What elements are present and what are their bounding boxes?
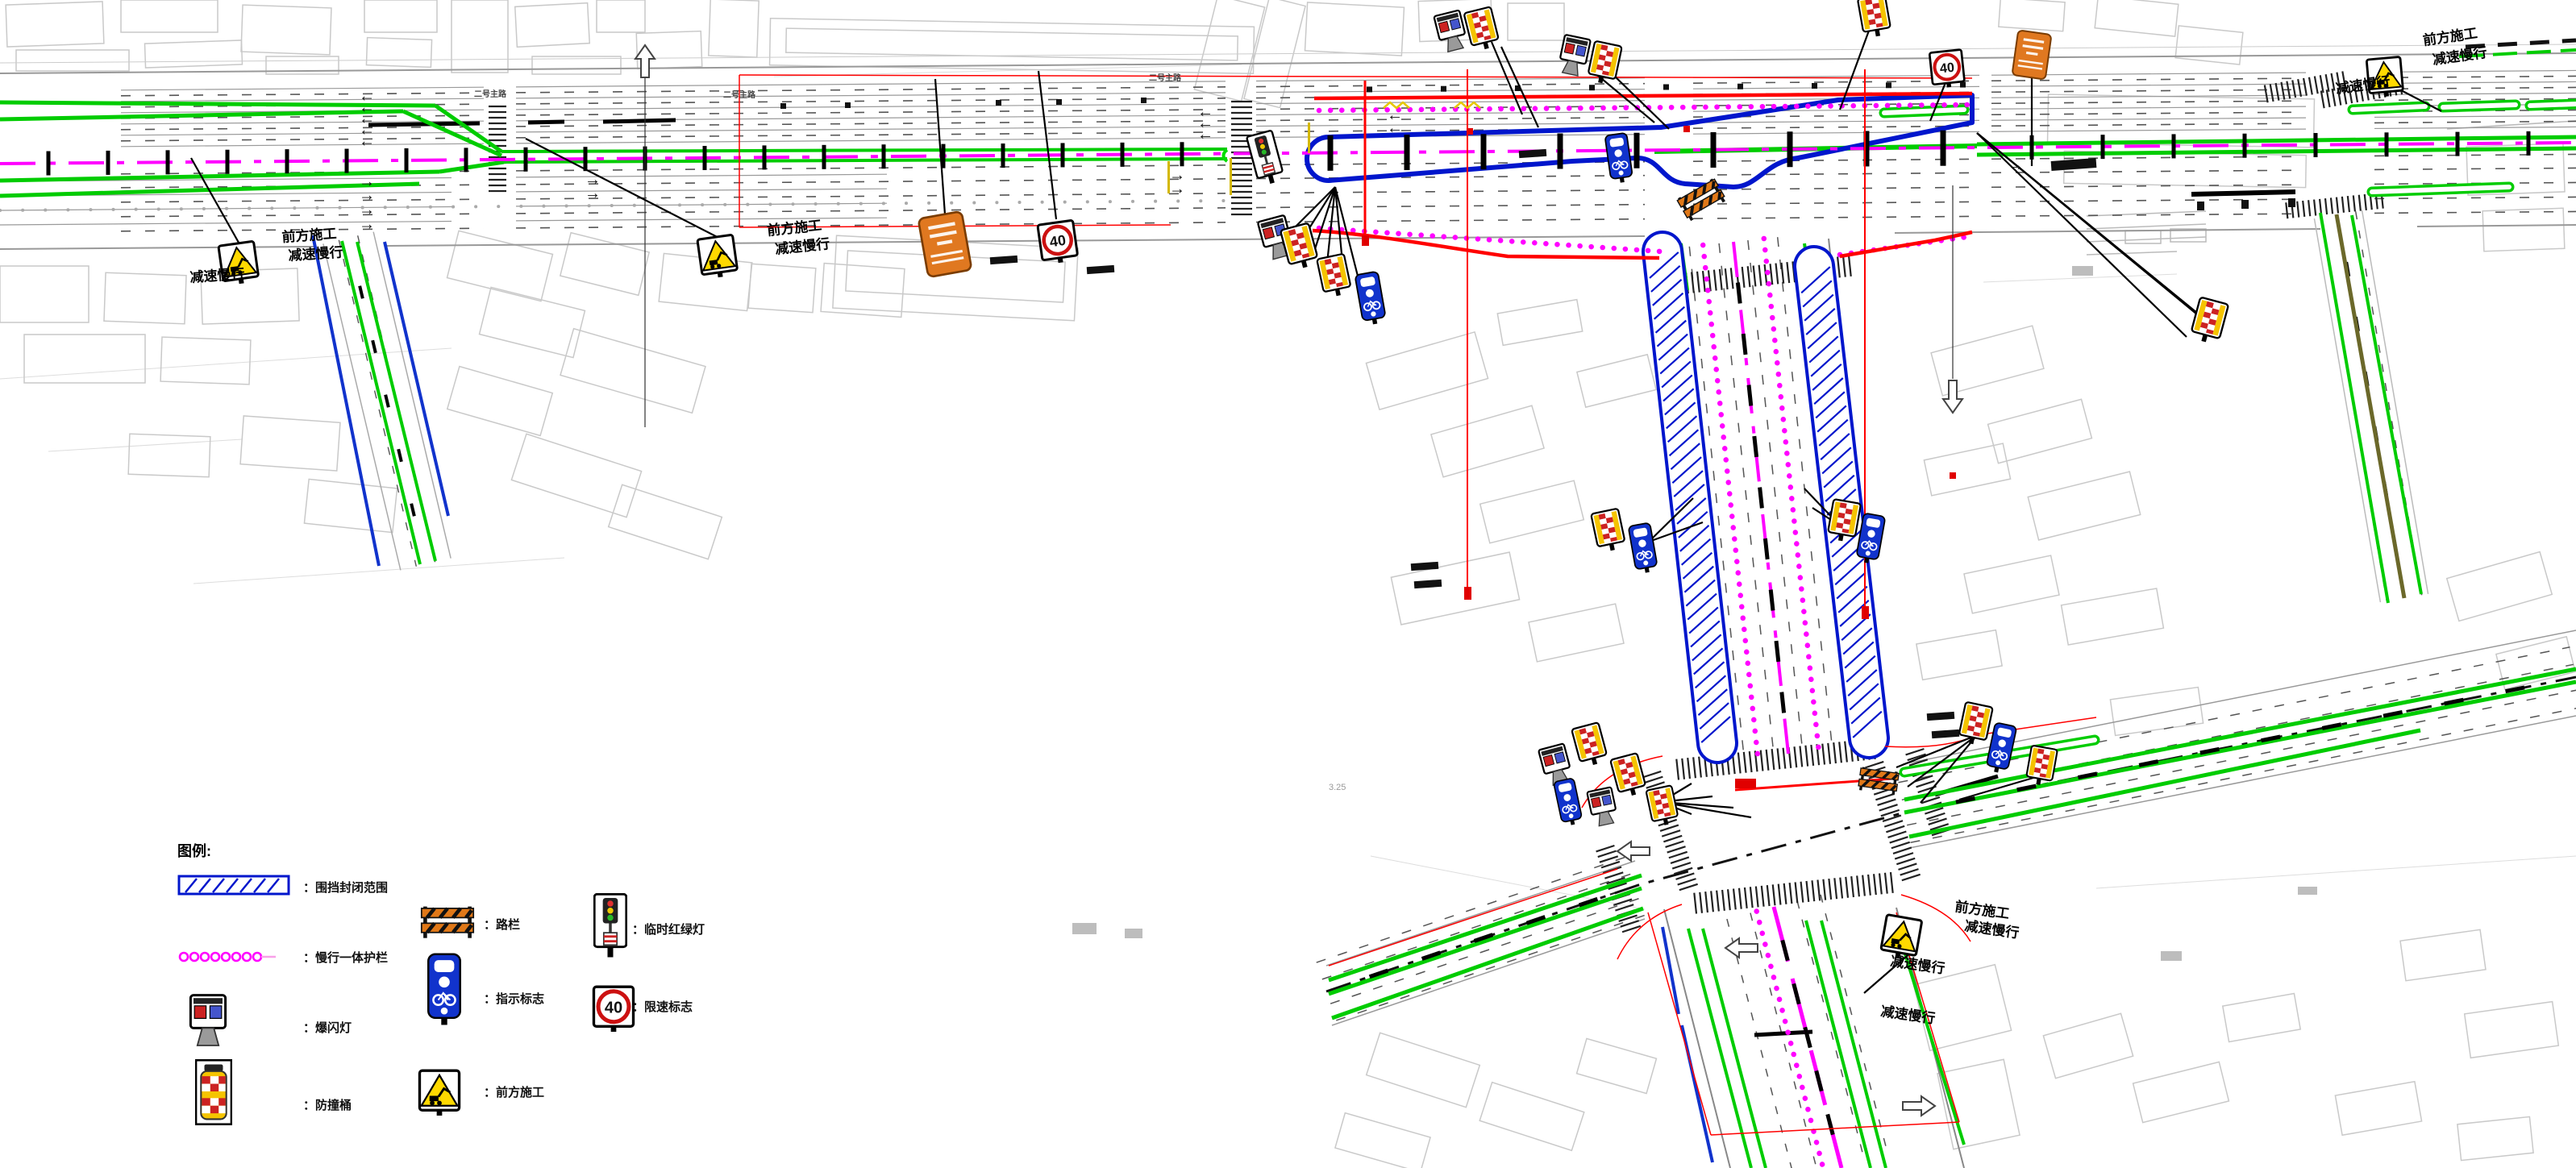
centerline-tick <box>584 147 588 171</box>
lane-arrow: ← <box>1197 103 1213 121</box>
zebra-stripe <box>1779 884 1781 905</box>
lane-line <box>2374 93 2576 94</box>
lane-dash <box>516 110 1226 115</box>
zebra-stripe <box>1717 891 1719 912</box>
building-footprint <box>304 479 397 532</box>
small-label-bar <box>1927 712 1955 721</box>
zebra-stripe <box>1807 881 1809 902</box>
lane-line <box>121 143 484 147</box>
zebra-stripe <box>1879 873 1882 894</box>
building-footprint <box>1366 332 1488 409</box>
zebra-stripe <box>1678 879 1696 884</box>
lane-line <box>1991 106 2306 109</box>
lane-line <box>1256 101 1645 104</box>
zebra-stripe <box>1893 847 1912 853</box>
zebra-stripe <box>1667 846 1686 852</box>
lane-line <box>121 87 484 90</box>
zebra-stripe <box>1916 781 1935 787</box>
zebra-stripe <box>1772 749 1775 770</box>
lane-dash <box>2374 87 2576 89</box>
centerline-tick <box>1758 487 1764 508</box>
zebra-stripe <box>1891 842 1910 848</box>
dimension-note: 3.25 <box>1329 783 1346 792</box>
lane-line <box>1256 89 1645 93</box>
zebra-stripe <box>1851 876 1854 897</box>
parcel-blob <box>2161 951 2182 961</box>
zebra-stripe <box>2265 85 2268 103</box>
building-footprint <box>1335 1113 1430 1168</box>
centerline-tick <box>763 145 767 169</box>
zebra-stripe <box>1778 748 1780 769</box>
red-station-label <box>1683 126 1690 132</box>
zebra-stripe <box>1750 751 1752 772</box>
building-footprint <box>515 3 589 48</box>
crash-barrel-marker-icon <box>1571 722 1608 768</box>
zebra-stripe <box>2282 82 2285 100</box>
zebra-stripe <box>2327 89 2330 107</box>
lane-dash <box>1693 202 1979 204</box>
zebra-stripe <box>1895 853 1913 858</box>
zebra-stripe <box>1839 742 1841 763</box>
pedestrian-crossing <box>1231 102 1252 214</box>
zebra-stripe <box>1879 804 1898 810</box>
parcel-blob <box>2072 266 2093 276</box>
construction-notice-board-icon <box>2012 30 2052 79</box>
building-footprint <box>2175 26 2243 64</box>
road-name-label: 二号主路 <box>474 89 507 99</box>
pedestrian-crossing <box>1694 872 1892 913</box>
centerline-tick <box>1814 1070 1823 1091</box>
zebra-stripe <box>1781 263 1783 284</box>
flow-arrow-icon <box>1725 938 1758 958</box>
callout-slow: 减速慢行 <box>1879 1003 1936 1026</box>
legend-item-slow-barrier: ：慢行一体护栏 <box>303 949 388 966</box>
zebra-stripe <box>1878 800 1896 805</box>
zebra-stripe <box>1722 890 1725 911</box>
lane-dash <box>516 98 1226 104</box>
post <box>1367 86 1372 92</box>
zebra-stripe <box>2359 195 2361 211</box>
zebra-stripe <box>2353 195 2355 211</box>
curb-line <box>1664 909 1730 1168</box>
lane-arrow: → <box>585 185 601 202</box>
lane-arrow: ← <box>359 87 375 105</box>
speed-limit-40-sign-icon <box>1929 49 1965 89</box>
building-footprint <box>709 0 759 57</box>
post <box>1737 84 1743 89</box>
green-cap <box>1224 150 1228 161</box>
zebra-stripe <box>2320 75 2324 93</box>
small-label-bar <box>1932 729 1960 738</box>
building-footprint <box>560 233 649 296</box>
centerline-tick <box>1779 692 1786 713</box>
lane-dash <box>121 138 484 141</box>
flow-arrow-icon <box>1943 380 1962 413</box>
zebra-stripe <box>1603 867 1621 873</box>
building-footprint <box>1577 355 1656 407</box>
zebra-stripe <box>1738 753 1741 774</box>
centerline-tick <box>1742 334 1748 355</box>
post <box>1589 85 1595 90</box>
red-station-label <box>1862 606 1869 619</box>
lane-arrow: → <box>2008 156 2024 174</box>
centerline-tick <box>405 148 409 172</box>
zebra-stripe <box>1829 879 1831 900</box>
lane-dash <box>2374 197 2576 198</box>
centerline-tick <box>1061 143 1065 167</box>
lane-dash <box>2374 211 2576 213</box>
post <box>1812 83 1817 89</box>
centerline-tick <box>226 150 230 174</box>
centerline-tick <box>1711 132 1717 168</box>
curb-line <box>2417 225 2576 227</box>
zebra-stripe <box>1739 888 1742 909</box>
parking-stall <box>2125 231 2161 243</box>
lane-line <box>516 104 1226 110</box>
zebra-stripe <box>2309 77 2312 95</box>
zebra-stripe <box>1714 270 1717 291</box>
centerline-tick <box>1558 134 1563 169</box>
red-boundary <box>1711 1122 1959 1135</box>
green-lane-outline-core <box>2530 104 2576 106</box>
lane-dash <box>1748 240 1803 752</box>
legend-temp-signal-icon <box>593 893 627 959</box>
zebra-stripe <box>1662 830 1680 836</box>
zebra-stripe <box>1790 883 1792 904</box>
small-label-bar <box>1414 580 1442 588</box>
zebra-stripe <box>1666 842 1684 847</box>
centerline-tick <box>2172 134 2176 158</box>
zebra-stripe <box>1642 771 1661 777</box>
centerline-tick <box>2527 131 2531 156</box>
flow-arrow-icon <box>1903 1096 1935 1116</box>
centerline-tick <box>882 144 886 168</box>
zebra-stripe <box>1805 746 1808 767</box>
building-footprint <box>1916 630 2002 680</box>
zebra-stripe <box>1886 826 1904 832</box>
centerline-tick <box>397 449 403 462</box>
zebra-stripe <box>1671 857 1689 862</box>
lane-dash <box>516 208 1226 214</box>
green-lane-line <box>342 241 420 564</box>
guide-sign-icon <box>1604 133 1633 185</box>
zebra-stripe <box>1843 256 1846 277</box>
centerline-tick <box>822 145 826 169</box>
legend-enclosure-icon <box>177 874 290 896</box>
centerline-tick <box>1481 134 1487 169</box>
zebra-stripe <box>1771 264 1773 285</box>
lane-line <box>1256 78 1645 81</box>
slow-barrier-dots <box>1319 228 1661 251</box>
zebra-stripe <box>1840 878 1842 899</box>
building-footprint <box>2223 994 2300 1042</box>
lane-dash <box>516 87 1226 93</box>
lane-arrow: → <box>1169 180 1185 197</box>
stop-bar <box>2191 192 2295 194</box>
lane-line <box>2374 70 2576 72</box>
zebra-stripe <box>1837 257 1840 278</box>
guide-sign-icon <box>1355 271 1386 326</box>
red-boundary <box>1648 912 1711 1135</box>
building-footprint <box>121 0 218 32</box>
zebra-stripe <box>1672 862 1691 868</box>
building-footprint <box>452 0 508 73</box>
legend-slow-barrier-icon <box>177 950 277 964</box>
curb-line <box>0 247 314 249</box>
blue-edge-line <box>1682 1025 1712 1162</box>
lane-line <box>1256 123 1645 127</box>
zebra-stripe <box>1676 759 1679 780</box>
callout-construction: 前方施工 <box>1954 898 2010 921</box>
centerline-tick <box>106 151 110 175</box>
centerline-tick <box>1180 142 1184 166</box>
stop-bar <box>1754 1032 1812 1035</box>
zebra-stripe <box>1711 891 1713 912</box>
zebra-stripe <box>2321 91 2324 109</box>
lane-line <box>516 127 1226 132</box>
building-footprint <box>597 0 645 32</box>
post <box>1886 82 1891 88</box>
building-footprint <box>2110 688 2203 736</box>
zebra-stripe <box>1703 271 1705 292</box>
zebra-stripe <box>1846 877 1848 898</box>
zebra-stripe <box>1756 887 1758 908</box>
zebra-stripe <box>1613 900 1632 905</box>
centerline-tick <box>1825 1114 1834 1135</box>
zebra-stripe <box>2365 194 2366 210</box>
zebra-stripe <box>1748 266 1750 287</box>
lane-line <box>516 93 1226 98</box>
zebra-stripe <box>1885 873 1887 894</box>
building-footprint <box>1367 1033 1480 1107</box>
lane-dash <box>339 240 416 567</box>
centerline-tick <box>1001 143 1005 168</box>
zebra-stripe <box>1660 825 1679 831</box>
post <box>2241 200 2249 209</box>
zebra-stripe <box>1694 893 1696 914</box>
construction-notice-board-icon <box>918 211 972 277</box>
zebra-stripe <box>1811 745 1813 766</box>
lane-arrow: → <box>2056 156 2072 174</box>
lane-dash <box>121 214 484 217</box>
lane-line <box>516 138 1226 143</box>
parcel-line <box>48 439 242 451</box>
centerline-tick <box>1121 143 1125 167</box>
lane-dash <box>516 165 1226 171</box>
lane-dash <box>1991 112 2306 114</box>
leader-line <box>1492 42 1522 114</box>
legend-item-speed-limit: ：限速标志 <box>632 998 693 1015</box>
red-station-label <box>1950 472 1956 479</box>
centerline-tick <box>358 285 364 298</box>
lane-line <box>516 189 887 192</box>
callout-slow: 减速慢行 <box>1889 953 1946 976</box>
lane-dash <box>1256 118 1645 121</box>
parcel-blob <box>2298 887 2317 895</box>
zebra-stripe <box>2337 197 2338 214</box>
building-footprint <box>1937 1059 2020 1149</box>
crash-barrel-marker-icon <box>2025 746 2058 788</box>
zebra-stripe <box>1812 880 1814 901</box>
red-station-label <box>1467 128 1473 135</box>
centerline-tick <box>2101 135 2105 159</box>
zebra-stripe <box>1891 872 1893 893</box>
building-footprint <box>1497 300 1582 346</box>
zebra-stripe <box>2314 200 2316 216</box>
zebra-stripe <box>1745 887 1747 908</box>
post <box>2197 202 2204 210</box>
building-footprint <box>1391 552 1519 625</box>
centerline-tick <box>1787 131 1793 167</box>
lane-dash <box>2374 168 2576 169</box>
cross-road-centerline <box>1326 677 2576 991</box>
building-footprint <box>364 0 437 32</box>
zebra-stripe <box>1883 816 1901 821</box>
zebra-stripe <box>1845 742 1847 763</box>
centerline-tick <box>410 503 416 516</box>
centerline-tick <box>384 394 390 407</box>
zebra-stripe <box>2331 197 2333 214</box>
lane-dash <box>516 132 1226 138</box>
centerline-tick <box>47 152 51 176</box>
zebra-stripe <box>2333 89 2336 106</box>
centerline-tick <box>2456 132 2460 156</box>
building-footprint <box>128 434 210 476</box>
lane-dash <box>1336 913 1650 1020</box>
parcel-blob <box>1072 923 1097 934</box>
speed-limit-40-sign-icon <box>1038 220 1079 265</box>
building-footprint <box>1194 0 1264 101</box>
lane-dash <box>1256 106 1645 110</box>
centerline-tick <box>703 146 707 170</box>
zebra-stripe <box>2332 73 2335 91</box>
building-footprint <box>1913 965 2011 1051</box>
lane-line <box>0 222 452 225</box>
green-lane-line <box>501 149 1227 152</box>
leader-line <box>1613 74 1669 129</box>
zebra-stripe <box>1776 264 1779 285</box>
blue-edge-line <box>385 242 448 516</box>
legend-item-strobe: ：爆闪灯 <box>303 1019 352 1036</box>
lane-dash <box>1991 101 2306 103</box>
small-label-bar <box>1087 265 1115 274</box>
post <box>996 100 1001 106</box>
building-footprint <box>2482 208 2565 251</box>
parking-row <box>2087 224 2206 229</box>
centerline-tick <box>2314 133 2318 157</box>
centerline-tick <box>1328 135 1334 171</box>
green-lane-line <box>1329 888 1642 994</box>
post <box>845 102 851 108</box>
zebra-stripe <box>1688 758 1690 779</box>
lane-line <box>2374 115 2576 117</box>
curb-line <box>1326 861 1635 966</box>
zebra-stripe <box>1865 762 1883 767</box>
strobe-light-icon <box>1434 10 1468 53</box>
parcel-blob <box>1125 929 1142 938</box>
callout-slow: 减速慢行 <box>774 235 830 257</box>
stop-bar <box>528 122 564 123</box>
curb-line <box>0 53 2576 73</box>
guide-sign-icon <box>1985 722 2016 775</box>
post <box>1141 98 1147 103</box>
zebra-stripe <box>1884 821 1903 826</box>
red-station-label <box>1735 779 1756 788</box>
zebra-stripe <box>1742 267 1745 288</box>
green-lane-line <box>2352 215 2421 594</box>
leader-line <box>1501 47 1538 127</box>
centerline-tick <box>2243 134 2247 158</box>
lane-dash <box>121 93 484 96</box>
lane-arrow: → <box>359 215 375 233</box>
zebra-stripe <box>1906 749 1925 754</box>
lane-line <box>516 174 887 177</box>
legend-item-barrel: ：防撞桶 <box>303 1096 352 1113</box>
legend-item-temp-signal: ：临时红绿灯 <box>632 921 705 937</box>
building-footprint <box>2064 151 2307 187</box>
zebra-stripe <box>1645 777 1663 783</box>
crash-barrel-marker-icon <box>2190 297 2229 346</box>
building-footprint <box>2465 1002 2559 1058</box>
building-footprint <box>104 272 186 323</box>
lane-dash <box>1693 216 1979 218</box>
green-lane-line <box>1688 929 1751 1168</box>
zebra-stripe <box>1744 752 1746 773</box>
post <box>1056 99 1062 105</box>
crash-barrel-marker-icon <box>1317 254 1352 299</box>
centerline-tick <box>2385 132 2389 156</box>
zebra-stripe <box>1669 852 1688 858</box>
centerline-tick <box>1752 436 1758 457</box>
lane-line <box>2374 81 2576 83</box>
building-footprint <box>447 231 553 301</box>
legend-speed-limit-icon <box>592 985 635 1032</box>
zebra-stripe <box>1794 746 1796 767</box>
zebra-stripe <box>2298 79 2301 97</box>
zebra-stripe <box>1762 886 1764 907</box>
flow-arrow-icon <box>635 45 655 77</box>
zebra-stripe <box>1767 885 1770 906</box>
zebra-stripe <box>2315 77 2318 94</box>
red-station-label <box>1362 235 1369 246</box>
building-footprint <box>1431 405 1544 477</box>
zebra-stripe <box>1817 880 1820 901</box>
building-footprint <box>1529 604 1624 662</box>
lane-dash <box>1256 190 1645 193</box>
callout-slow: 减速慢行 <box>189 265 245 285</box>
building-footprint <box>2457 1116 2533 1160</box>
building-footprint <box>1924 443 2010 496</box>
building-footprint <box>609 484 722 559</box>
zebra-stripe <box>2303 78 2307 96</box>
crash-barrel-marker-icon <box>1858 0 1891 39</box>
zebra-stripe <box>1800 746 1802 767</box>
construction-plan-canvas: 40 <box>0 0 2576 1168</box>
zebra-stripe <box>1784 883 1787 904</box>
small-label-bar <box>1411 562 1439 571</box>
legend-item-road-barrier: ：路栏 <box>484 916 520 933</box>
leader-line <box>1038 71 1056 219</box>
crash-barrel-marker-icon <box>1464 6 1500 52</box>
lane-dash <box>1991 170 2306 172</box>
zebra-stripe <box>1750 887 1753 908</box>
legend-item-enclosure: ：围挡封闭范围 <box>303 879 388 896</box>
leader-line <box>191 158 242 248</box>
zebra-stripe <box>2297 202 2299 218</box>
red-station-label <box>1464 587 1471 600</box>
lane-dash <box>121 199 484 202</box>
centerline-tick <box>1780 940 1789 961</box>
